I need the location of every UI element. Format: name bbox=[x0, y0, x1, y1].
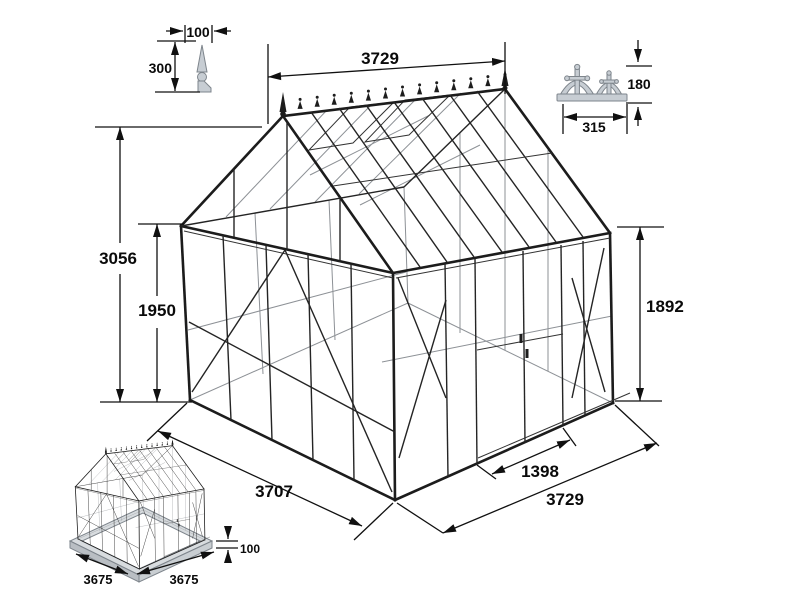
inset-base-height-label: 100 bbox=[240, 542, 260, 556]
finial-height-label: 300 bbox=[149, 60, 173, 76]
dim-door-width-label: 1398 bbox=[521, 462, 559, 481]
side-wall-and-door bbox=[398, 241, 630, 477]
dim-gable-width-label: 3707 bbox=[255, 482, 293, 501]
door-handle bbox=[526, 349, 529, 358]
diagram-canvas: 3729 3056 1950 1892 3707 1398 3729 bbox=[0, 0, 800, 600]
inset-side-b-label: 3675 bbox=[170, 572, 199, 587]
dim-side-wall-height-label: 1892 bbox=[646, 297, 684, 316]
dim-eave-height-label: 1950 bbox=[138, 301, 176, 320]
greenhouse-technical-drawing: 3729 3056 1950 1892 3707 1398 3729 bbox=[0, 0, 800, 600]
dim-ridge-length-label: 3729 bbox=[361, 49, 399, 68]
interior-seen-through-lines bbox=[188, 92, 613, 403]
cresting-width-label: 315 bbox=[582, 119, 606, 135]
finial-width-label: 100 bbox=[186, 24, 210, 40]
door-handle bbox=[520, 334, 523, 343]
finial-detail: 100 300 bbox=[149, 24, 231, 92]
cresting-detail: 180 315 bbox=[557, 40, 652, 135]
finial-drawing bbox=[197, 45, 207, 72]
dim-side-length-label: 3729 bbox=[546, 490, 584, 509]
cresting-height-label: 180 bbox=[627, 76, 651, 92]
footprint-inset: 3675 3675 100 bbox=[70, 439, 260, 587]
inset-side-a-label: 3675 bbox=[84, 572, 113, 587]
gable-end-glazing bbox=[189, 122, 395, 492]
dim-total-height-label: 3056 bbox=[99, 249, 137, 268]
roof-glazing-bars bbox=[311, 91, 583, 267]
